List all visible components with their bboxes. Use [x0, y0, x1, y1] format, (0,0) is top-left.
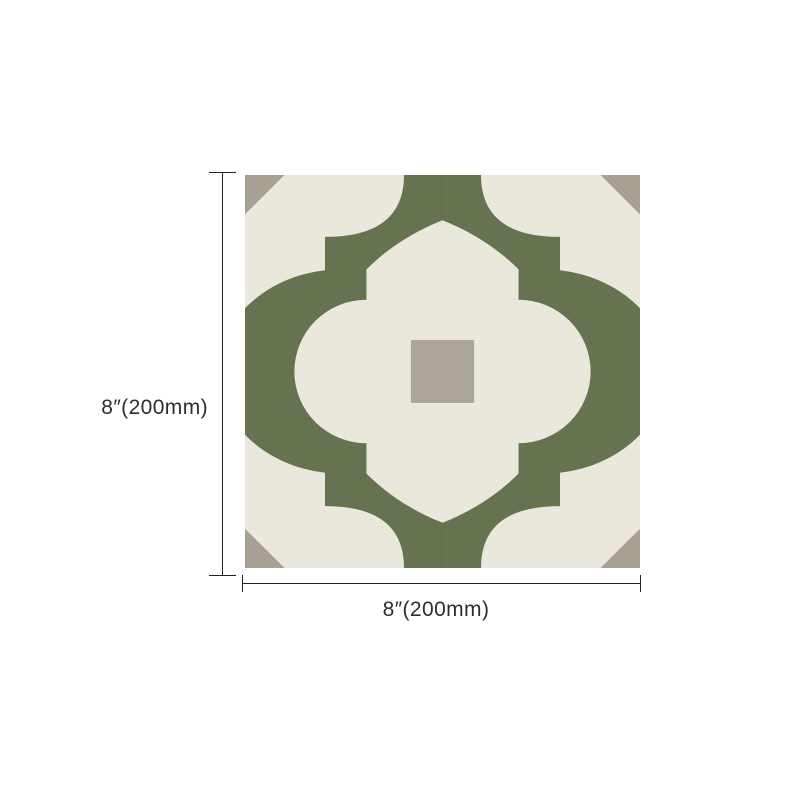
tile-image	[245, 175, 640, 568]
width-dimension-line	[242, 583, 641, 584]
width-dimension-label: 8″(200mm)	[336, 598, 536, 622]
tile-pattern-svg	[245, 175, 640, 568]
height-dim-bottom-tick	[209, 575, 236, 576]
height-dim-top-tick	[209, 172, 236, 173]
height-dimension-line	[222, 172, 223, 575]
dimension-diagram: 8″(200mm) 8″(200mm)	[0, 0, 800, 800]
height-dimension-label: 8″(200mm)	[58, 396, 208, 420]
width-dim-right-tick	[640, 575, 641, 592]
center-square	[411, 340, 474, 403]
width-dim-left-tick	[242, 575, 243, 592]
